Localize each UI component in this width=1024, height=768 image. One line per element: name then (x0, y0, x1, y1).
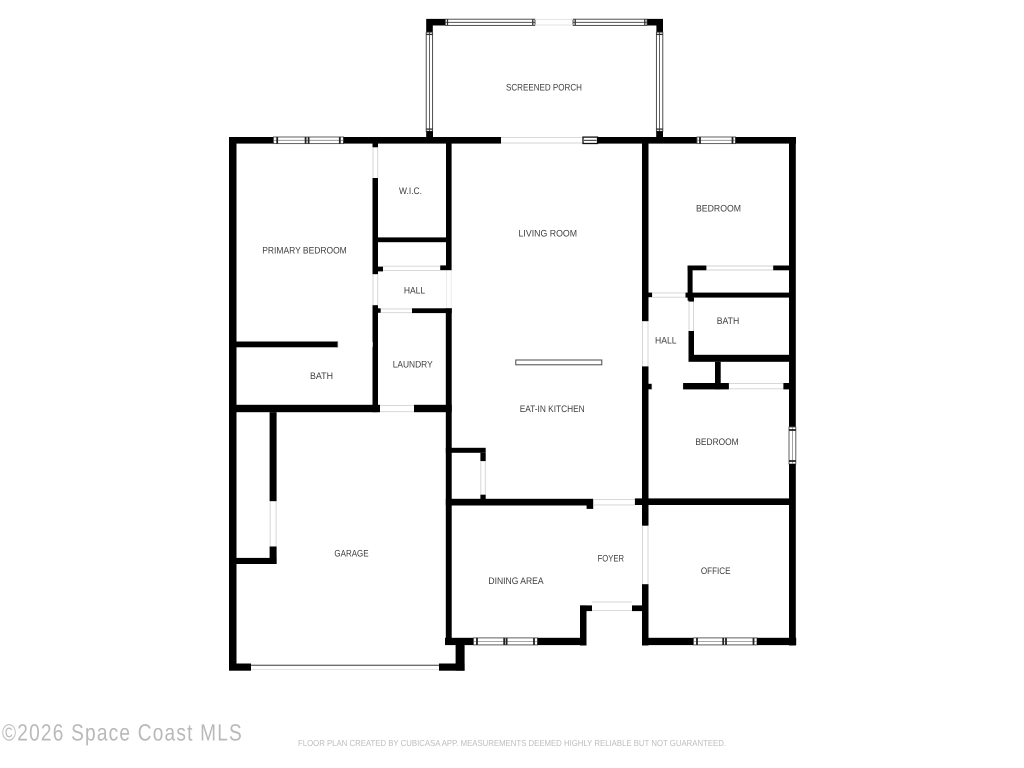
svg-text:BATH: BATH (310, 371, 333, 382)
svg-text:DINING AREA: DINING AREA (488, 576, 544, 587)
svg-text:LIVING ROOM: LIVING ROOM (519, 229, 578, 240)
svg-text:BEDROOM: BEDROOM (695, 437, 738, 448)
svg-text:LAUNDRY: LAUNDRY (393, 360, 434, 371)
svg-text:FLOOR PLAN CREATED BY CUBICASA: FLOOR PLAN CREATED BY CUBICASA APP. MEAS… (298, 738, 726, 748)
svg-text:FOYER: FOYER (598, 553, 625, 564)
svg-text:HALL: HALL (655, 335, 677, 346)
svg-text:W.I.C.: W.I.C. (399, 186, 422, 197)
svg-text:BEDROOM: BEDROOM (696, 204, 741, 215)
svg-text:OFFICE: OFFICE (701, 566, 731, 577)
svg-text:GARAGE: GARAGE (334, 549, 368, 560)
svg-text:PRIMARY BEDROOM: PRIMARY BEDROOM (262, 246, 347, 257)
svg-text:BATH: BATH (717, 316, 740, 327)
svg-text:HALL: HALL (404, 286, 425, 297)
svg-text:SCREENED PORCH: SCREENED PORCH (506, 83, 582, 94)
svg-text:EAT-IN KITCHEN: EAT-IN KITCHEN (520, 404, 585, 415)
svg-text:©2026 Space Coast MLS: ©2026 Space Coast MLS (2, 720, 243, 746)
